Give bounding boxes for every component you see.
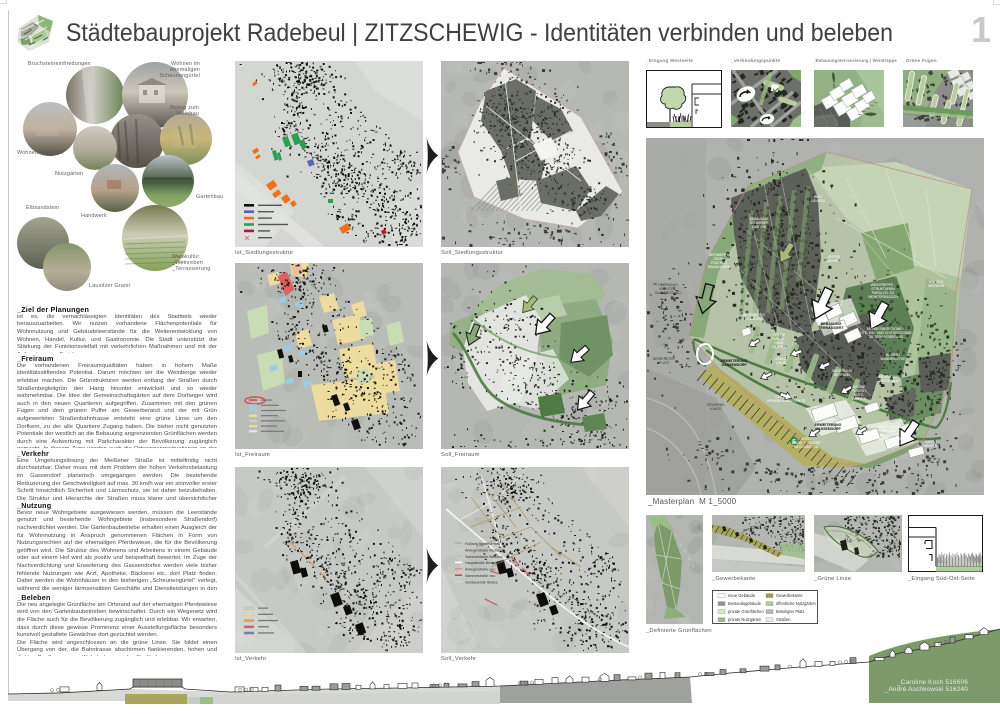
svg-text:GRÜNFLÄCHEN: GRÜNFLÄCHEN bbox=[876, 437, 902, 441]
svg-text:Fußweg Bestand+neu: Fußweg Bestand+neu bbox=[465, 542, 500, 546]
svg-text:TERRASSIERT: TERRASSIERT bbox=[818, 326, 844, 330]
svg-text:GASSENDORF: GASSENDORF bbox=[721, 363, 747, 367]
svg-text:Gewerbekante: Gewerbekante bbox=[776, 593, 803, 598]
svg-text:WEINTERRASSEN: WEINTERRASSEN bbox=[868, 295, 898, 299]
svg-text:S BADEN: S BADEN bbox=[747, 317, 762, 321]
svg-text:Anliegerstraße neu: Anliegerstraße neu bbox=[465, 568, 495, 572]
svg-text:private Grünflächen: private Grünflächen bbox=[728, 609, 764, 614]
svg-text:neue Gebäude: neue Gebäude bbox=[728, 593, 756, 598]
svg-text:WEINRAB: WEINRAB bbox=[923, 444, 940, 448]
svg-text:Hauptstraße Bestand: Hauptstraße Bestand bbox=[465, 561, 499, 565]
svg-text:LINSE: LINSE bbox=[776, 361, 787, 365]
svg-text:PLATZ: PLATZ bbox=[659, 361, 669, 365]
svg-text:WANDERWEGE: WANDERWEGE bbox=[880, 357, 906, 361]
svg-text:Anliegerstraße Bestand: Anliegerstraße Bestand bbox=[465, 548, 503, 552]
svg-text:RAUMLICHEN: RAUMLICHEN bbox=[708, 265, 731, 269]
svg-text:LEERSTAND: LEERSTAND bbox=[879, 379, 900, 383]
svg-text:ZU TERRASSIERUNG: ZU TERRASSIERUNG bbox=[869, 335, 904, 339]
svg-text:BAUMBESTAND: BAUMBESTAND bbox=[655, 291, 681, 295]
svg-text:BILITZGARTEN: BILITZGARTEN bbox=[794, 445, 819, 449]
svg-text:KANTE: KANTE bbox=[710, 407, 722, 411]
svg-text:rückbauende Straße: rückbauende Straße bbox=[465, 580, 498, 584]
svg-text:LÄUFEN: LÄUFEN bbox=[811, 199, 825, 203]
svg-text:GASSENDORF: GASSENDORF bbox=[815, 427, 841, 431]
svg-text:GARTEN: GARTEN bbox=[752, 225, 767, 229]
svg-text:GÄRTEN: GÄRTEN bbox=[772, 345, 787, 349]
svg-text:öffentliche Nutzgärten: öffentliche Nutzgärten bbox=[776, 601, 816, 606]
svg-text:Sammelstraße neu: Sammelstraße neu bbox=[465, 574, 495, 578]
svg-text:GARTEN: GARTEN bbox=[852, 397, 867, 401]
svg-text:Bestandsgebäude: Bestandsgebäude bbox=[728, 601, 762, 606]
svg-text:BESTAND: BESTAND bbox=[834, 373, 850, 377]
svg-text:WEINRAB: WEINRAB bbox=[928, 284, 945, 288]
svg-text:VERBINDUNGSPUNKTE: VERBINDUNGSPUNKTE bbox=[767, 399, 806, 403]
svg-text:WEINRAB: WEINRAB bbox=[826, 259, 843, 263]
svg-text:Sammelstraße Bestand: Sammelstraße Bestand bbox=[465, 555, 503, 559]
svg-text:Beteiligter Platz: Beteiligter Platz bbox=[776, 609, 804, 614]
